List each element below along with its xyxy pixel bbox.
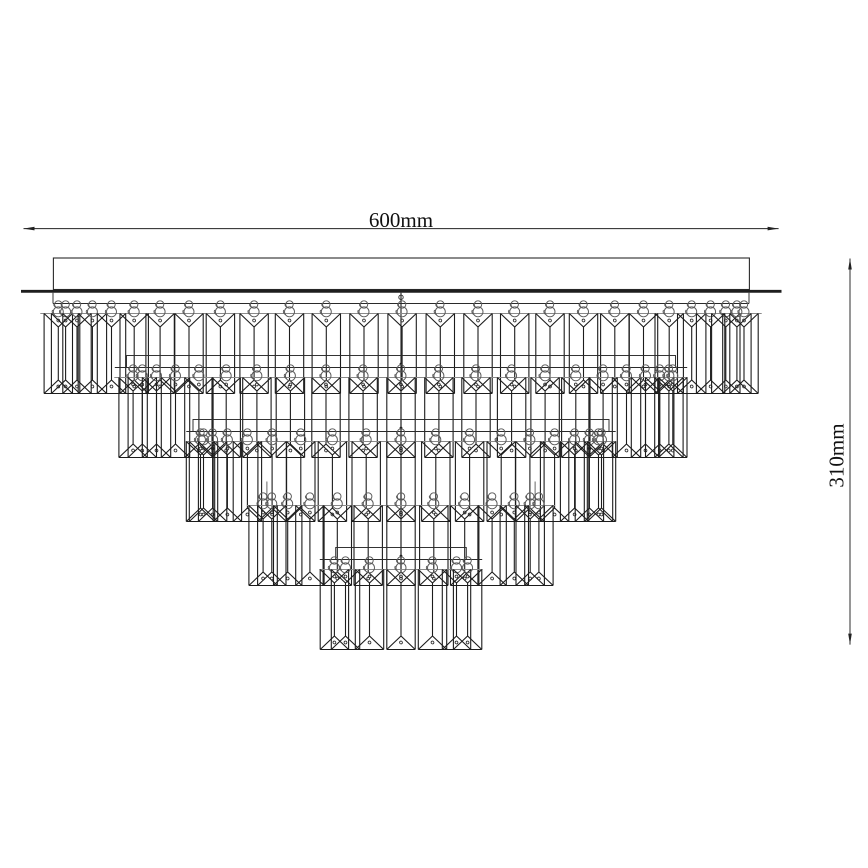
svg-text:600mm: 600mm <box>369 208 433 232</box>
svg-text:310mm: 310mm <box>825 423 849 487</box>
